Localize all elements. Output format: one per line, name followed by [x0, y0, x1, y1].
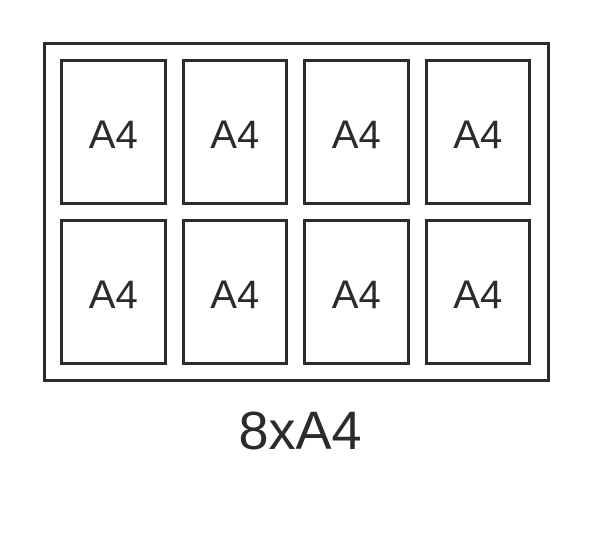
a4-panel-label: A4	[210, 275, 259, 315]
a4-panel: A4	[182, 219, 289, 365]
a4-panel: A4	[60, 219, 167, 365]
a4-panel: A4	[182, 59, 289, 205]
a4-panel-label: A4	[453, 275, 502, 315]
a4-panel: A4	[60, 59, 167, 205]
a4-panel-label: A4	[332, 275, 381, 315]
a4-panel: A4	[303, 59, 410, 205]
a4-panel-label: A4	[332, 115, 381, 155]
a4-panel-label: A4	[210, 115, 259, 155]
a4-panel: A4	[425, 219, 532, 365]
a4-panel: A4	[425, 59, 532, 205]
a4-panel-label: A4	[453, 115, 502, 155]
diagram-canvas: A4 A4 A4 A4 A4 A4 A4 A4 8xA	[0, 0, 600, 539]
a4-panel: A4	[303, 219, 410, 365]
outer-frame: A4 A4 A4 A4 A4 A4 A4 A4	[43, 42, 550, 382]
panel-grid: A4 A4 A4 A4 A4 A4 A4 A4	[46, 45, 547, 379]
a4-panel-label: A4	[89, 275, 138, 315]
a4-panel-label: A4	[89, 115, 138, 155]
diagram-caption: 8xA4	[0, 404, 600, 458]
